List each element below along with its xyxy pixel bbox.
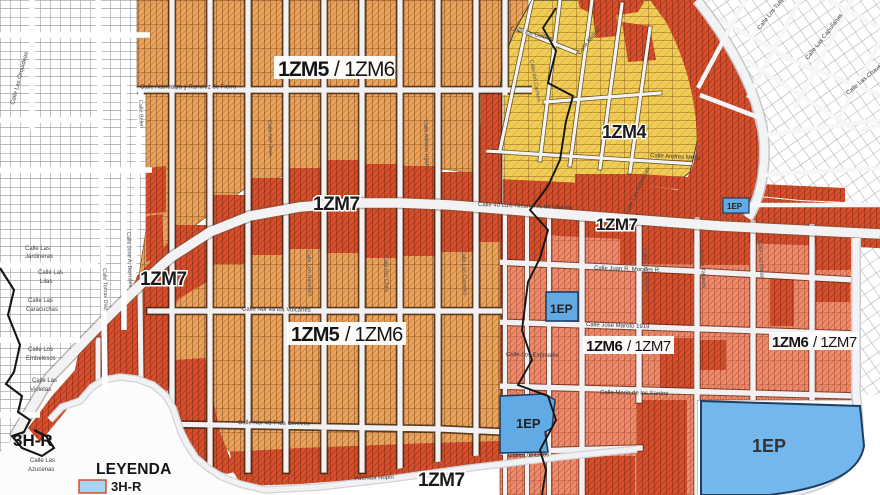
svg-text:Calle Los Lirios: Calle Los Lirios xyxy=(508,452,549,459)
svg-text:1ZM4: 1ZM4 xyxy=(602,122,647,142)
svg-text:1ZM5: 1ZM5 xyxy=(278,58,330,81)
svg-text:Calle Nor 49 los Volcanes: Calle Nor 49 los Volcanes xyxy=(242,307,311,314)
svg-text:Lilas: Lilas xyxy=(40,279,52,285)
svg-text:Azucenas: Azucenas xyxy=(28,467,54,473)
svg-text:1ZM6: 1ZM6 xyxy=(586,338,623,355)
svg-text:Calle Maria de los Santos: Calle Maria de los Santos xyxy=(600,390,668,397)
svg-text:Jardineras: Jardineras xyxy=(25,254,53,260)
svg-text:LEYENDA: LEYENDA xyxy=(96,461,171,478)
svg-text:1EP: 1EP xyxy=(516,416,541,431)
svg-text:Calle Las: Calle Las xyxy=(28,298,53,304)
svg-text:/ 1ZM6: / 1ZM6 xyxy=(345,324,403,346)
svg-text:1ZM5: 1ZM5 xyxy=(291,324,340,346)
svg-text:/ 1ZM7: / 1ZM7 xyxy=(813,334,857,351)
svg-text:1EP: 1EP xyxy=(727,202,743,211)
svg-text:1ZM7: 1ZM7 xyxy=(418,470,465,491)
svg-text:Calle Las: Calle Las xyxy=(32,378,57,384)
svg-text:3H-R: 3H-R xyxy=(13,431,53,450)
svg-text:1ZM7: 1ZM7 xyxy=(596,215,638,234)
svg-text:1ZM7: 1ZM7 xyxy=(140,269,187,290)
svg-text:3H-R: 3H-R xyxy=(111,479,142,494)
svg-text:Calle Las: Calle Las xyxy=(30,458,55,464)
svg-text:Violetas: Violetas xyxy=(30,387,51,393)
svg-text:Calle Las: Calle Las xyxy=(25,246,50,252)
svg-text:1ZM7: 1ZM7 xyxy=(313,194,360,215)
svg-text:Calle Los: Calle Los xyxy=(28,347,53,353)
svg-text:Embelesos: Embelesos xyxy=(26,356,56,362)
svg-text:Calle Atahualpa y Ramirez de F: Calle Atahualpa y Ramirez de Fierro xyxy=(140,85,237,91)
svg-text:Calle Nor 48 T los Cerezos: Calle Nor 48 T los Cerezos xyxy=(238,420,310,427)
svg-text:/ 1ZM6: / 1ZM6 xyxy=(334,58,395,81)
svg-text:Calle Belen: Calle Belen xyxy=(137,100,144,128)
svg-text:1EP: 1EP xyxy=(550,302,573,316)
svg-text:1EP: 1EP xyxy=(752,436,786,456)
svg-text:Calle Las: Calle Las xyxy=(38,270,63,276)
svg-text:1ZM6: 1ZM6 xyxy=(772,334,809,351)
svg-text:Calle Los Espinales: Calle Los Espinales xyxy=(506,352,559,359)
svg-text:/ 1ZM7: / 1ZM7 xyxy=(627,338,671,355)
svg-text:Caracuchas: Caracuchas xyxy=(26,307,58,313)
svg-text:Calle Nor Jose: Calle Nor Jose xyxy=(266,120,273,156)
